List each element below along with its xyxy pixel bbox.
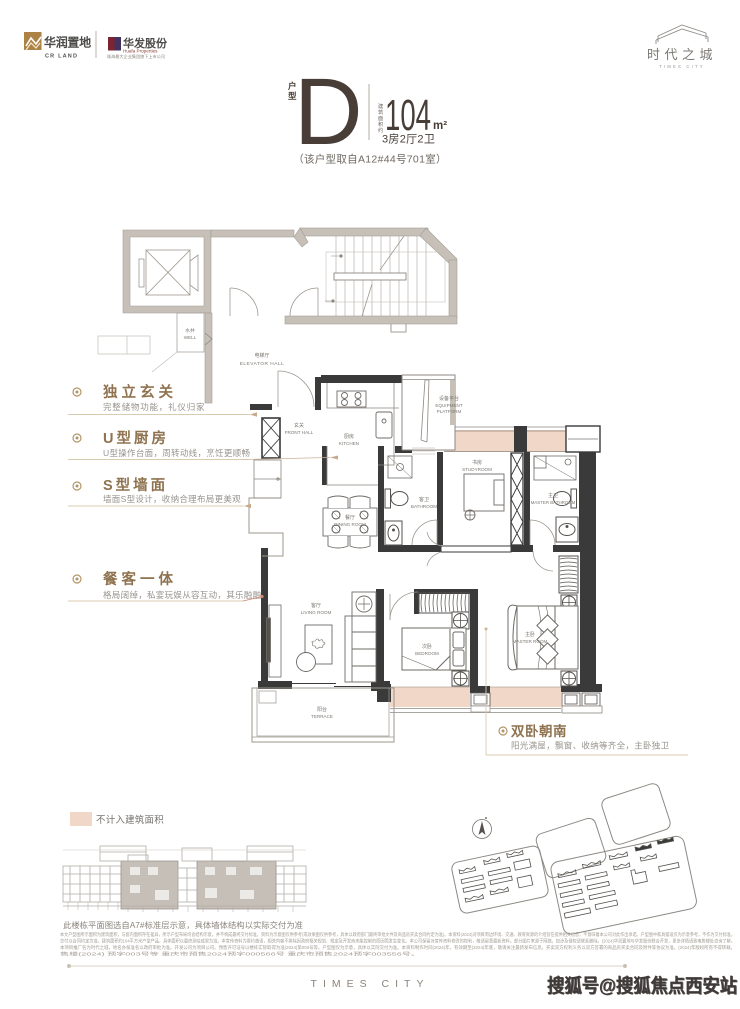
svg-text:交付以合同约定为准。建筑面积约104平方米户型产品，具体面积: 交付以合同约定为准。建筑面积约104平方米户型产品，具体面积以最终测绘成果为准。…: [60, 938, 735, 945]
svg-text:主卫: 主卫: [548, 492, 558, 499]
svg-text:客厅: 客厅: [311, 602, 321, 609]
svg-text:不计入建筑面积: 不计入建筑面积: [96, 814, 164, 826]
svg-text:水井: 水井: [185, 327, 195, 334]
svg-text:TIMES CITY: TIMES CITY: [311, 978, 430, 990]
svg-text:独立玄关: 独立玄关: [103, 383, 177, 401]
svg-text:时代之城: 时代之城: [647, 47, 717, 62]
svg-text:主卧: 主卧: [525, 631, 535, 638]
svg-text:3房2厅2卫: 3房2厅2卫: [382, 133, 435, 146]
svg-text:（该户型取自A12#44号701室）: （该户型取自A12#44号701室）: [293, 153, 447, 166]
svg-text:Huafa Properties: Huafa Properties: [123, 49, 158, 54]
svg-text:完整储物功能，礼仪归家: 完整储物功能，礼仪归家: [103, 402, 205, 412]
svg-text:厨房: 厨房: [344, 433, 354, 440]
svg-text:售楼(2024) 预字003号等 重庆市预售2024预字00: 售楼(2024) 预字003号等 重庆市预售2024预字000566号 重庆市预…: [60, 951, 420, 958]
svg-text:ELEVATOR HALL: ELEVATOR HALL: [240, 361, 285, 367]
svg-text:华润置地: 华润置地: [44, 35, 91, 50]
svg-text:此楼栋平面图选自A7#标准层示意，具体墙体结构以实际交付为准: 此楼栋平面图选自A7#标准层示意，具体墙体结构以实际交付为准: [63, 920, 303, 930]
svg-text:本文户型图所示面积为建筑面积，与套内面积存在差异，所示户型布: 本文户型图所示面积为建筑面积，与套内面积存在差异，所示户型布局均含结构示意，并不…: [60, 931, 735, 938]
svg-text:BATHROOM: BATHROOM: [411, 504, 437, 509]
svg-text:客卫: 客卫: [419, 496, 429, 503]
svg-text:TIMES CITY: TIMES CITY: [659, 64, 705, 69]
svg-text:S型墙面: S型墙面: [103, 476, 168, 494]
svg-text:搜狐号@搜狐焦点西安站: 搜狐号@搜狐焦点西安站: [548, 975, 738, 998]
svg-text:积: 积: [378, 121, 383, 128]
svg-text:FRONT HALL: FRONT HALL: [285, 430, 314, 435]
svg-text:玄关: 玄关: [294, 422, 304, 429]
svg-text:EQUIPMENT: EQUIPMENT: [435, 403, 463, 408]
svg-text:U型厨房: U型厨房: [103, 429, 169, 447]
svg-text:墙面S型设计，收纳合理布局更美观: 墙面S型设计，收纳合理布局更美观: [103, 494, 241, 504]
svg-text:MASTER BATHROOM: MASTER BATHROOM: [531, 500, 576, 505]
svg-text:阳台: 阳台: [317, 706, 327, 713]
svg-text:建: 建: [378, 102, 383, 110]
svg-text:面: 面: [378, 115, 383, 122]
svg-text:餐客一体: 餐客一体: [103, 570, 177, 588]
svg-text:格局阔绰，私宴玩娱从容互动，其乐融融: 格局阔绰，私宴玩娱从容互动，其乐融融: [103, 590, 262, 600]
svg-text:KITCHEN: KITCHEN: [339, 441, 359, 446]
svg-text:本项目推广名为时代之城，地名办核准名以政府审批为准。开发公司: 本项目推广名为时代之城，地名办核准名以政府审批为准。开发公司为项目公司。预售许可…: [60, 944, 735, 951]
svg-text:STUDYROOM: STUDYROOM: [462, 467, 492, 472]
svg-text:LIVING ROOM: LIVING ROOM: [301, 610, 332, 615]
svg-text:U型操作台面，周转动线，烹饪更顺畅: U型操作台面，周转动线，烹饪更顺畅: [103, 448, 250, 458]
svg-text:次卧: 次卧: [422, 643, 432, 650]
svg-text:餐厅: 餐厅: [345, 514, 355, 521]
svg-text:BEDROOM: BEDROOM: [415, 651, 439, 656]
svg-text:电梯厅: 电梯厅: [254, 352, 269, 359]
svg-text:TERRACE: TERRACE: [311, 714, 333, 719]
svg-text:m²: m²: [433, 120, 447, 132]
svg-text:PLATFORM: PLATFORM: [437, 409, 462, 414]
svg-text:珠海最大企业集团旗下上市公司: 珠海最大企业集团旗下上市公司: [107, 53, 165, 60]
svg-text:双卧朝南: 双卧朝南: [511, 723, 567, 739]
svg-text:书房: 书房: [472, 459, 482, 466]
svg-text:DINING ROOM: DINING ROOM: [334, 522, 366, 527]
svg-text:WELL: WELL: [184, 335, 197, 340]
svg-text:设备平台: 设备平台: [439, 395, 459, 402]
svg-text:D: D: [294, 59, 363, 165]
svg-text:筑: 筑: [378, 108, 384, 116]
svg-text:CR LAND: CR LAND: [45, 54, 78, 60]
svg-text:阳光满屋，飘窗、收纳等齐全，主卧独卫: 阳光满屋，飘窗、收纳等齐全，主卧独卫: [511, 741, 670, 751]
svg-text:MASTER ROOM: MASTER ROOM: [513, 639, 548, 644]
